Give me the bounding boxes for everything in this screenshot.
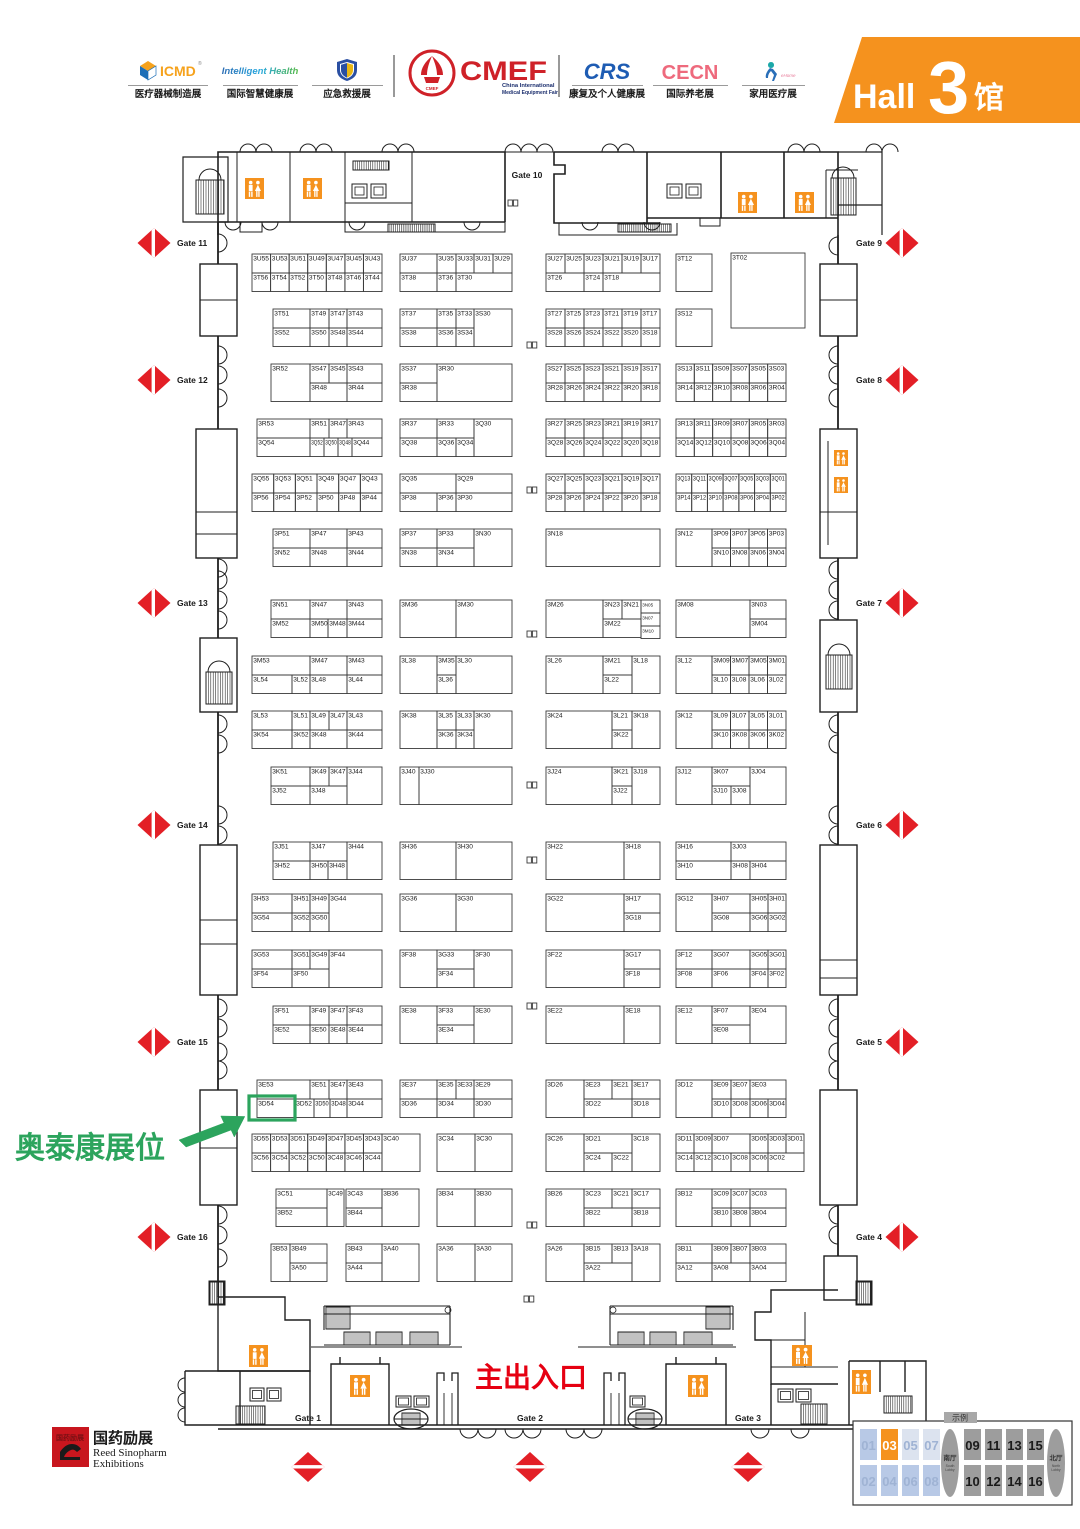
svg-text:3R17: 3R17	[642, 421, 658, 428]
svg-text:3T54: 3T54	[272, 275, 287, 282]
svg-text:3Q01: 3Q01	[772, 476, 785, 483]
svg-text:3R37: 3R37	[401, 421, 417, 428]
svg-text:3E51: 3E51	[311, 1082, 327, 1089]
svg-text:奥泰康展位: 奥泰康展位	[15, 1131, 165, 1165]
svg-text:3R07: 3R07	[732, 421, 748, 428]
svg-text:3U21: 3U21	[604, 256, 620, 263]
svg-text:3L54: 3L54	[253, 677, 268, 684]
svg-text:3H04: 3H04	[751, 863, 767, 870]
svg-text:3G08: 3G08	[713, 915, 729, 922]
svg-text:3E47: 3E47	[330, 1082, 346, 1089]
svg-text:3G49: 3G49	[311, 952, 327, 959]
svg-text:3P05: 3P05	[750, 531, 766, 538]
svg-text:3N08: 3N08	[732, 550, 748, 557]
svg-text:3Q14: 3Q14	[677, 440, 693, 447]
svg-text:05: 05	[903, 1438, 917, 1453]
svg-text:3E04: 3E04	[751, 1008, 767, 1015]
svg-text:3G02: 3G02	[769, 915, 785, 922]
svg-text:3S21: 3S21	[604, 366, 620, 373]
svg-text:3R24: 3R24	[585, 385, 601, 392]
svg-text:3S47: 3S47	[311, 366, 327, 373]
svg-text:3R38: 3R38	[401, 385, 417, 392]
svg-text:3E34: 3E34	[438, 1027, 454, 1034]
svg-text:3T36: 3T36	[438, 275, 453, 282]
svg-text:3B12: 3B12	[677, 1191, 693, 1198]
svg-text:3R14: 3R14	[677, 385, 693, 392]
svg-text:3J10: 3J10	[713, 788, 728, 795]
svg-text:3R06: 3R06	[751, 385, 767, 392]
svg-text:3U27: 3U27	[547, 256, 563, 263]
svg-text:3R04: 3R04	[769, 385, 785, 392]
svg-text:3B07: 3B07	[732, 1246, 748, 1253]
svg-text:3N05: 3N05	[642, 603, 653, 608]
svg-text:3J22: 3J22	[613, 788, 628, 795]
svg-text:3E03: 3E03	[751, 1082, 767, 1089]
svg-text:3Q52: 3Q52	[311, 440, 323, 447]
svg-text:3S24: 3S24	[585, 330, 601, 337]
svg-text:3E08: 3E08	[713, 1027, 729, 1034]
svg-text:3C14: 3C14	[677, 1155, 693, 1162]
svg-text:3K30: 3K30	[475, 713, 491, 720]
svg-text:3R27: 3R27	[547, 421, 563, 428]
svg-text:3T37: 3T37	[401, 311, 416, 318]
svg-text:3P24: 3P24	[585, 495, 601, 502]
svg-text:3D53: 3D53	[272, 1136, 288, 1143]
svg-text:3F34: 3F34	[438, 971, 453, 978]
svg-text:3K38: 3K38	[401, 713, 417, 720]
svg-text:3B26: 3B26	[547, 1191, 563, 1198]
svg-text:3J18: 3J18	[633, 769, 648, 776]
svg-text:3B53: 3B53	[272, 1246, 288, 1253]
svg-text:3M35: 3M35	[438, 658, 455, 665]
svg-text:3N43: 3N43	[348, 602, 364, 609]
svg-text:3C02: 3C02	[769, 1155, 785, 1162]
svg-text:3E07: 3E07	[732, 1082, 748, 1089]
svg-text:3Q17: 3Q17	[642, 476, 658, 483]
svg-text:3S28: 3S28	[547, 330, 563, 337]
svg-text:3E53: 3E53	[258, 1082, 274, 1089]
svg-text:3D50: 3D50	[315, 1101, 329, 1108]
svg-text:3P04: 3P04	[756, 495, 769, 502]
svg-text:3H53: 3H53	[253, 896, 269, 903]
svg-text:3C49: 3C49	[328, 1191, 343, 1198]
svg-text:3C03: 3C03	[751, 1191, 767, 1198]
svg-text:3S52: 3S52	[274, 330, 290, 337]
svg-text:3T52: 3T52	[290, 275, 305, 282]
svg-text:3Q55: 3Q55	[253, 476, 269, 483]
svg-text:3A18: 3A18	[633, 1246, 649, 1253]
svg-text:3G54: 3G54	[253, 915, 269, 922]
svg-text:3K52: 3K52	[293, 732, 309, 739]
svg-text:3K22: 3K22	[613, 732, 629, 739]
svg-text:3B13: 3B13	[613, 1246, 629, 1253]
svg-text:3L53: 3L53	[253, 713, 268, 720]
svg-text:3K21: 3K21	[613, 769, 629, 776]
svg-text:3Q19: 3Q19	[623, 476, 639, 483]
svg-text:3C56: 3C56	[253, 1155, 269, 1162]
svg-text:3P52: 3P52	[297, 495, 313, 502]
svg-text:3L22: 3L22	[604, 677, 619, 684]
svg-text:3S17: 3S17	[642, 366, 658, 373]
svg-text:3L12: 3L12	[677, 658, 692, 665]
svg-text:3D11: 3D11	[677, 1136, 693, 1143]
svg-text:3G01: 3G01	[769, 952, 785, 959]
svg-text:3K02: 3K02	[769, 732, 785, 739]
svg-text:3L18: 3L18	[633, 658, 648, 665]
svg-text:3G50: 3G50	[311, 915, 327, 922]
svg-text:3P22: 3P22	[604, 495, 620, 502]
svg-text:3R23: 3R23	[585, 421, 601, 428]
svg-text:3D12: 3D12	[677, 1082, 693, 1089]
svg-text:3B44: 3B44	[347, 1210, 363, 1217]
svg-text:3Q23: 3Q23	[585, 476, 601, 483]
svg-text:3T44: 3T44	[365, 275, 380, 282]
svg-text:3U45: 3U45	[346, 256, 362, 263]
svg-text:3S25: 3S25	[566, 366, 582, 373]
svg-text:3U47: 3U47	[328, 256, 344, 263]
svg-text:3L10: 3L10	[713, 677, 728, 684]
svg-text:3A22: 3A22	[585, 1265, 601, 1272]
svg-text:3Q08: 3Q08	[732, 440, 748, 447]
svg-text:3Q06: 3Q06	[751, 440, 767, 447]
svg-text:3F47: 3F47	[330, 1008, 345, 1015]
svg-text:康复及个人健康展: 康复及个人健康展	[568, 88, 646, 100]
svg-text:3U31: 3U31	[475, 256, 491, 263]
svg-text:3N52: 3N52	[274, 550, 290, 557]
svg-text:3S18: 3S18	[642, 330, 658, 337]
svg-text:07: 07	[924, 1438, 938, 1453]
svg-text:3U23: 3U23	[585, 256, 601, 263]
svg-text:3R20: 3R20	[623, 385, 639, 392]
svg-text:3: 3	[928, 46, 969, 129]
svg-text:3G30: 3G30	[457, 896, 473, 903]
svg-text:馆: 馆	[974, 81, 1004, 115]
svg-text:3R43: 3R43	[348, 421, 364, 428]
svg-text:3D05: 3D05	[751, 1136, 767, 1143]
svg-text:3J51: 3J51	[274, 844, 289, 851]
svg-text:3T38: 3T38	[401, 275, 416, 282]
svg-text:3M26: 3M26	[547, 602, 564, 609]
svg-text:3F43: 3F43	[348, 1008, 363, 1015]
svg-text:3R30: 3R30	[438, 366, 454, 373]
svg-text:3U43: 3U43	[365, 256, 381, 263]
svg-text:3P09: 3P09	[713, 531, 729, 538]
svg-text:3F50: 3F50	[293, 971, 308, 978]
svg-text:家用医疗展: 家用医疗展	[749, 88, 797, 100]
svg-text:3F51: 3F51	[274, 1008, 289, 1015]
svg-text:3E44: 3E44	[348, 1027, 364, 1034]
svg-text:3J03: 3J03	[732, 844, 747, 851]
svg-text:3L49: 3L49	[311, 713, 326, 720]
svg-text:3A08: 3A08	[713, 1265, 729, 1272]
svg-text:3G17: 3G17	[625, 952, 641, 959]
svg-text:3M22: 3M22	[604, 621, 621, 628]
svg-text:3D07: 3D07	[713, 1136, 729, 1143]
svg-text:3S11: 3S11	[696, 366, 711, 373]
svg-text:示例: 示例	[952, 1413, 968, 1423]
svg-text:3N12: 3N12	[677, 531, 693, 538]
svg-text:3U49: 3U49	[309, 256, 325, 263]
svg-text:3H16: 3H16	[677, 844, 693, 851]
svg-text:3J08: 3J08	[732, 788, 747, 795]
svg-text:3Q53: 3Q53	[275, 476, 291, 483]
svg-text:3F49: 3F49	[311, 1008, 326, 1015]
svg-text:3U55: 3U55	[253, 256, 269, 263]
svg-text:CMEF: CMEF	[460, 56, 547, 86]
svg-text:3P12: 3P12	[693, 495, 706, 502]
svg-text:3E37: 3E37	[401, 1082, 417, 1089]
svg-text:3E09: 3E09	[713, 1082, 729, 1089]
svg-text:3C22: 3C22	[613, 1155, 629, 1162]
svg-text:3F54: 3F54	[253, 971, 268, 978]
svg-text:3P02: 3P02	[772, 495, 785, 502]
svg-text:3M36: 3M36	[401, 602, 418, 609]
svg-text:3S12: 3S12	[677, 311, 693, 318]
svg-text:3K54: 3K54	[253, 732, 269, 739]
svg-text:3U29: 3U29	[494, 256, 510, 263]
svg-text:3D43: 3D43	[365, 1136, 381, 1143]
svg-text:3M04: 3M04	[751, 621, 768, 628]
svg-text:3E48: 3E48	[330, 1027, 346, 1034]
svg-text:3N03: 3N03	[751, 602, 767, 609]
svg-text:3R53: 3R53	[258, 421, 274, 428]
svg-text:13: 13	[1007, 1438, 1021, 1453]
svg-text:3Q54: 3Q54	[258, 440, 274, 447]
svg-text:3C17: 3C17	[633, 1191, 649, 1198]
svg-text:3D18: 3D18	[633, 1101, 649, 1108]
svg-text:ICMD: ICMD	[160, 63, 196, 79]
svg-text:3L01: 3L01	[769, 713, 784, 720]
svg-text:3C26: 3C26	[547, 1136, 563, 1143]
svg-text:3D22: 3D22	[585, 1101, 601, 1108]
svg-text:3D52: 3D52	[296, 1101, 312, 1108]
svg-text:3C51: 3C51	[277, 1191, 293, 1198]
svg-text:3F18: 3F18	[625, 971, 640, 978]
svg-text:3G07: 3G07	[713, 952, 729, 959]
svg-text:3L07: 3L07	[732, 713, 747, 720]
svg-text:3L26: 3L26	[547, 658, 562, 665]
svg-text:3M21: 3M21	[604, 658, 621, 665]
svg-text:3Q50: 3Q50	[325, 440, 337, 447]
svg-text:3T24: 3T24	[585, 275, 600, 282]
svg-text:3B30: 3B30	[476, 1191, 492, 1198]
svg-text:3R13: 3R13	[677, 421, 693, 428]
svg-text:3F30: 3F30	[475, 952, 490, 959]
svg-text:3B03: 3B03	[751, 1246, 767, 1253]
svg-text:3D34: 3D34	[438, 1101, 454, 1108]
svg-text:3F02: 3F02	[769, 971, 784, 978]
svg-text:3S34: 3S34	[457, 330, 473, 337]
svg-text:3G06: 3G06	[751, 915, 767, 922]
svg-text:国际养老展: 国际养老展	[666, 88, 714, 100]
svg-text:3A44: 3A44	[347, 1265, 363, 1272]
svg-text:国药励展: 国药励展	[56, 1433, 85, 1442]
svg-text:3S03: 3S03	[769, 366, 785, 373]
svg-text:3H49: 3H49	[311, 896, 327, 903]
svg-text:3T35: 3T35	[438, 311, 453, 318]
svg-text:3N06: 3N06	[750, 550, 766, 557]
svg-text:3Q18: 3Q18	[642, 440, 658, 447]
svg-text:3D03: 3D03	[769, 1136, 785, 1143]
svg-text:3B08: 3B08	[732, 1210, 748, 1217]
svg-text:3M48: 3M48	[329, 621, 346, 628]
svg-text:3Q21: 3Q21	[604, 476, 620, 483]
svg-text:3R44: 3R44	[348, 385, 364, 392]
svg-text:3R08: 3R08	[732, 385, 748, 392]
svg-text:3D47: 3D47	[328, 1136, 344, 1143]
svg-text:3C12: 3C12	[695, 1155, 711, 1162]
svg-text:3H52: 3H52	[274, 863, 290, 870]
svg-text:3M53: 3M53	[253, 658, 270, 665]
svg-text:3N07: 3N07	[642, 616, 653, 621]
svg-text:3K49: 3K49	[311, 769, 327, 776]
svg-text:南厅: 南厅	[944, 1453, 958, 1462]
svg-text:3T30: 3T30	[457, 275, 472, 282]
svg-text:3C40: 3C40	[383, 1136, 399, 1143]
svg-text:3Q34: 3Q34	[457, 440, 473, 447]
svg-text:3S26: 3S26	[566, 330, 582, 337]
svg-text:3T26: 3T26	[547, 275, 562, 282]
svg-text:3L08: 3L08	[732, 677, 747, 684]
svg-text:3E35: 3E35	[438, 1082, 454, 1089]
svg-text:3A40: 3A40	[383, 1246, 399, 1253]
svg-text:医疗器械制造展: 医疗器械制造展	[135, 88, 202, 100]
svg-text:3C24: 3C24	[585, 1155, 601, 1162]
svg-text:3R03: 3R03	[769, 421, 785, 428]
svg-text:06: 06	[903, 1474, 917, 1489]
svg-text:3K47: 3K47	[330, 769, 346, 776]
svg-text:3S43: 3S43	[348, 366, 364, 373]
svg-text:Intelligent Health: Intelligent Health	[222, 66, 299, 77]
svg-text:3L44: 3L44	[348, 677, 363, 684]
svg-text:3H08: 3H08	[732, 863, 748, 870]
svg-text:3H01: 3H01	[769, 896, 785, 903]
svg-text:3G52: 3G52	[293, 915, 309, 922]
svg-text:3R26: 3R26	[566, 385, 582, 392]
svg-text:3Q30: 3Q30	[475, 421, 491, 428]
svg-text:3H44: 3H44	[348, 844, 364, 851]
svg-text:3P47: 3P47	[311, 531, 327, 538]
svg-text:Gate 5: Gate 5	[856, 1037, 882, 1047]
svg-text:3N23: 3N23	[604, 602, 620, 609]
svg-text:3J04: 3J04	[751, 769, 766, 776]
svg-text:3R09: 3R09	[714, 421, 730, 428]
svg-text:Gate 8: Gate 8	[856, 375, 882, 385]
svg-text:Gate 7: Gate 7	[856, 598, 882, 608]
svg-text:3G18: 3G18	[625, 915, 641, 922]
svg-text:14: 14	[1007, 1474, 1022, 1489]
svg-text:16: 16	[1028, 1474, 1042, 1489]
svg-text:Exhibitions: Exhibitions	[93, 1458, 144, 1470]
svg-text:3Q27: 3Q27	[547, 476, 563, 483]
svg-text:3A30: 3A30	[476, 1246, 492, 1253]
svg-text:3Q25: 3Q25	[566, 476, 582, 483]
svg-text:Gate 1: Gate 1	[295, 1413, 321, 1423]
svg-text:3E23: 3E23	[585, 1082, 601, 1089]
svg-text:3P37: 3P37	[401, 531, 417, 538]
svg-text:3J48: 3J48	[311, 788, 326, 795]
svg-text:3Q03: 3Q03	[756, 476, 769, 483]
svg-text:3U33: 3U33	[457, 256, 473, 263]
svg-text:3E52: 3E52	[274, 1027, 290, 1034]
svg-text:3R51: 3R51	[311, 421, 327, 428]
svg-text:3Q11: 3Q11	[693, 476, 706, 483]
svg-text:3C54: 3C54	[272, 1155, 288, 1162]
svg-text:3F04: 3F04	[751, 971, 766, 978]
svg-text:03: 03	[882, 1438, 896, 1453]
svg-text:3C10: 3C10	[713, 1155, 729, 1162]
svg-text:3M43: 3M43	[348, 658, 365, 665]
svg-text:3Q48: 3Q48	[339, 440, 351, 447]
svg-text:3T12: 3T12	[677, 256, 692, 263]
svg-text:3M05: 3M05	[750, 658, 767, 665]
svg-text:3D36: 3D36	[401, 1101, 417, 1108]
svg-text:3L30: 3L30	[457, 658, 472, 665]
svg-text:3P18: 3P18	[642, 495, 658, 502]
svg-text:3A50: 3A50	[291, 1265, 307, 1272]
svg-text:3K12: 3K12	[677, 713, 693, 720]
svg-text:3S07: 3S07	[732, 366, 748, 373]
svg-text:3D21: 3D21	[585, 1136, 601, 1143]
svg-text:3N48: 3N48	[311, 550, 327, 557]
svg-text:3A12: 3A12	[677, 1265, 693, 1272]
svg-text:3N04: 3N04	[769, 550, 785, 557]
svg-text:3L09: 3L09	[713, 713, 728, 720]
svg-text:3C44: 3C44	[365, 1155, 381, 1162]
svg-text:09: 09	[965, 1438, 979, 1453]
svg-text:11: 11	[987, 1438, 1001, 1453]
svg-text:3N51: 3N51	[272, 602, 288, 609]
svg-text:3L35: 3L35	[438, 713, 453, 720]
svg-text:3H36: 3H36	[401, 844, 417, 851]
svg-text:3B49: 3B49	[291, 1246, 307, 1253]
svg-text:Gate 2: Gate 2	[517, 1413, 543, 1423]
svg-text:3C21: 3C21	[613, 1191, 629, 1198]
svg-text:3M07: 3M07	[732, 658, 749, 665]
svg-text:3E33: 3E33	[457, 1082, 473, 1089]
svg-text:08: 08	[924, 1474, 938, 1489]
svg-text:3C46: 3C46	[346, 1155, 362, 1162]
svg-text:3N18: 3N18	[547, 531, 563, 538]
svg-text:3Q13: 3Q13	[677, 476, 690, 483]
svg-text:CRS: CRS	[584, 59, 631, 84]
svg-text:3R19: 3R19	[623, 421, 639, 428]
svg-text:3P14: 3P14	[677, 495, 690, 502]
svg-text:3D06: 3D06	[751, 1101, 767, 1108]
svg-text:3J52: 3J52	[272, 788, 287, 795]
svg-text:Gate 10: Gate 10	[512, 170, 543, 180]
svg-text:3G05: 3G05	[751, 952, 767, 959]
svg-text:Hall: Hall	[853, 78, 915, 116]
svg-text:3H18: 3H18	[625, 844, 641, 851]
svg-text:3M47: 3M47	[311, 658, 328, 665]
svg-text:3E21: 3E21	[613, 1082, 629, 1089]
svg-text:应急救援展: 应急救援展	[323, 88, 371, 100]
svg-text:Gate 3: Gate 3	[735, 1413, 761, 1423]
svg-text:3C23: 3C23	[585, 1191, 601, 1198]
svg-text:CECN: CECN	[662, 62, 719, 84]
svg-text:3G12: 3G12	[677, 896, 693, 903]
svg-text:3E18: 3E18	[625, 1008, 641, 1015]
svg-text:3L43: 3L43	[348, 713, 363, 720]
svg-text:3F44: 3F44	[330, 952, 345, 959]
svg-text:3Q36: 3Q36	[438, 440, 454, 447]
svg-text:3R12: 3R12	[696, 385, 712, 392]
svg-text:3C52: 3C52	[290, 1155, 306, 1162]
svg-text:3T19: 3T19	[623, 311, 638, 318]
svg-text:3K48: 3K48	[311, 732, 327, 739]
svg-text:3D30: 3D30	[475, 1101, 491, 1108]
